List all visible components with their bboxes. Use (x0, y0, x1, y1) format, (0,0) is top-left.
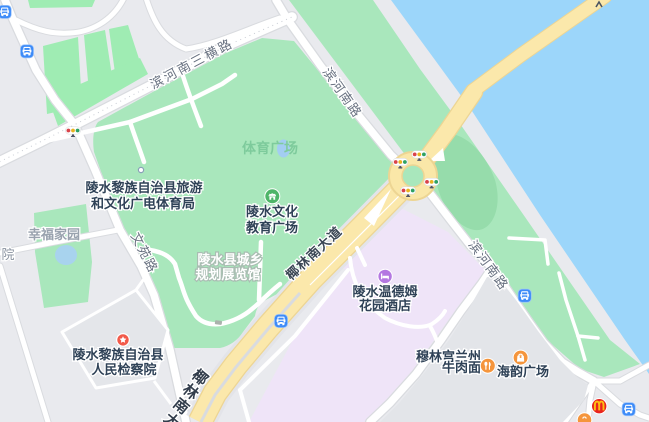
svg-text:和文化广电体育局: 和文化广电体育局 (91, 196, 195, 211)
svg-text:陵水黎族自治县旅游: 陵水黎族自治县旅游 (85, 180, 202, 195)
svg-text:院: 院 (1, 247, 14, 262)
svg-text:陵水黎族自治县: 陵水黎族自治县 (72, 347, 163, 362)
svg-text:牛肉面: 牛肉面 (442, 360, 481, 375)
svg-text:陵水文化: 陵水文化 (246, 204, 298, 219)
svg-text:陵水温德姆: 陵水温德姆 (352, 284, 417, 299)
svg-text:规划展览馆: 规划展览馆 (195, 267, 260, 282)
svg-text:人民检察院: 人民检察院 (91, 362, 156, 377)
svg-text:海韵广场: 海韵广场 (497, 364, 549, 379)
svg-text:幸福家园: 幸福家园 (28, 227, 80, 242)
svg-text:陵水县城乡: 陵水县城乡 (197, 252, 262, 267)
svg-text:教育广场: 教育广场 (245, 220, 298, 235)
svg-text:体育广场: 体育广场 (242, 140, 298, 156)
svg-text:花园酒店: 花园酒店 (359, 298, 411, 313)
